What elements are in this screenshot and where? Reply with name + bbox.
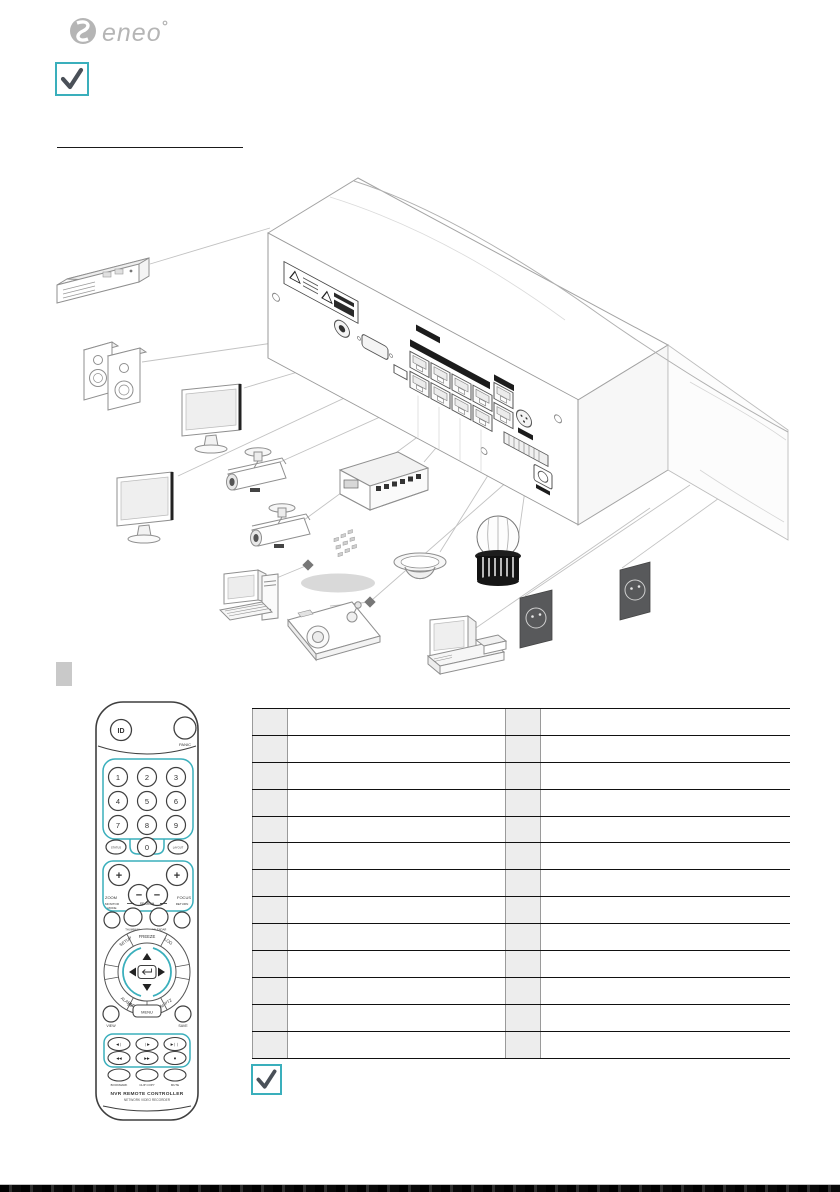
save-button	[175, 1006, 191, 1022]
button-number-cell	[252, 924, 288, 950]
stereo-speakers	[84, 342, 146, 410]
remote-control-illustration: ID PANIC 1 2 3 4 5 6 7 8	[85, 695, 210, 1130]
table-row	[252, 709, 790, 736]
button-number-cell	[252, 951, 288, 977]
button-description-cell	[541, 924, 790, 950]
table-row	[252, 897, 790, 924]
search-group-label: SEARCH	[140, 902, 155, 906]
view-button	[103, 1006, 119, 1022]
table-row	[252, 817, 790, 844]
clip-copy-label: CLIP COPY	[139, 1083, 154, 1087]
remote-brand-line1: NVR REMOTE CONTROLLER	[111, 1091, 184, 1097]
digit-3: 3	[174, 773, 178, 782]
button-number-cell	[252, 870, 288, 896]
button-number-cell	[505, 843, 541, 869]
save-label: SAVE	[178, 1024, 188, 1028]
calendar-search-button	[150, 908, 168, 926]
bullet-camera	[227, 448, 287, 492]
table-row	[252, 736, 790, 763]
table-row	[252, 978, 790, 1005]
button-number-cell	[505, 1032, 541, 1058]
zoom-minus: −	[136, 890, 142, 902]
note-check-icon	[55, 62, 89, 96]
focus-label: FOCUS	[177, 895, 191, 900]
alarm-siren	[475, 516, 521, 586]
button-number-cell	[505, 817, 541, 843]
id-button-label: ID	[118, 728, 125, 735]
return-label: RETURN	[176, 902, 189, 906]
return-button	[174, 912, 190, 928]
remote-buttons-table	[252, 708, 790, 1059]
button-description-cell	[288, 709, 505, 735]
button-number-cell	[505, 951, 541, 977]
number-pad: 1 2 3 4 5 6 7 8 9 0 STATUS LAYOUT	[103, 759, 193, 857]
poe-switch	[340, 452, 428, 510]
focus-plus: +	[174, 870, 180, 882]
panic-button-label: PANIC	[179, 742, 191, 747]
button-number-cell	[252, 1005, 288, 1031]
zoom-plus: +	[116, 870, 122, 882]
button-description-cell	[288, 870, 505, 896]
table-row	[252, 870, 790, 897]
dome-camera	[394, 553, 446, 579]
button-description-cell	[541, 736, 790, 762]
button-number-cell	[505, 924, 541, 950]
network-cloud	[301, 574, 375, 593]
focus-minus: −	[154, 890, 160, 902]
button-description-cell	[288, 897, 505, 923]
layout-button-label: LAYOUT	[173, 846, 184, 850]
digit-4: 4	[116, 797, 120, 806]
monitor-mode-button	[104, 912, 120, 928]
page-footer-strip	[0, 1184, 840, 1192]
button-number-cell	[505, 870, 541, 896]
manual-page: eneo	[0, 0, 840, 1192]
panic-button	[174, 717, 196, 739]
button-number-cell	[505, 736, 541, 762]
section-heading-underline	[57, 133, 243, 148]
thumbnail-search-button	[124, 908, 142, 926]
digit-5: 5	[145, 797, 149, 806]
button-description-cell	[288, 790, 505, 816]
note-check-icon-bottom	[251, 1064, 282, 1095]
bookmark-button	[108, 1069, 130, 1081]
button-description-cell	[541, 843, 790, 869]
eneo-logo: eneo	[66, 13, 176, 49]
button-number-cell	[505, 1005, 541, 1031]
digit-2: 2	[145, 773, 149, 782]
zoom-label: ZOOM	[105, 895, 117, 900]
stop-button: ■	[174, 1057, 176, 1061]
button-description-cell	[541, 1005, 790, 1031]
table-row	[252, 951, 790, 978]
power-outlet	[520, 590, 552, 648]
digit-0: 0	[145, 843, 149, 852]
ring-freeze-label: FREEZE	[139, 934, 156, 939]
view-label: VIEW	[106, 1024, 116, 1028]
button-number-cell	[505, 897, 541, 923]
button-description-cell	[541, 978, 790, 1004]
button-description-cell	[288, 951, 505, 977]
playback-group: ◀❘ ❘▶ ▶❘❘ ◀◀ ▶▶ ■	[104, 1034, 190, 1067]
table-row	[252, 790, 790, 817]
button-description-cell	[541, 817, 790, 843]
monitor	[117, 472, 172, 543]
button-description-cell	[541, 870, 790, 896]
digit-8: 8	[145, 821, 149, 830]
remote-brand-line2: NETWORK VIDEO RECORDER	[124, 1098, 171, 1102]
pc-workstation	[220, 570, 278, 620]
button-number-cell	[252, 978, 288, 1004]
table-row	[252, 1032, 790, 1059]
button-description-cell	[541, 709, 790, 735]
button-number-cell	[252, 897, 288, 923]
section-marker	[56, 662, 72, 686]
button-number-cell	[505, 790, 541, 816]
button-number-cell	[505, 978, 541, 1004]
table-row	[252, 763, 790, 790]
button-number-cell	[252, 843, 288, 869]
button-description-cell	[288, 843, 505, 869]
button-number-cell	[505, 763, 541, 789]
esata-storage-rack	[57, 258, 149, 303]
table-row	[252, 1005, 790, 1032]
logo-text: eneo	[102, 19, 162, 47]
digit-9: 9	[174, 821, 178, 830]
ptz-keyboard-controller	[288, 530, 380, 660]
installation-diagram	[0, 160, 840, 695]
button-number-cell	[252, 709, 288, 735]
clip-copy-button	[136, 1069, 158, 1081]
button-number-cell	[505, 709, 541, 735]
table-row	[252, 924, 790, 951]
button-number-cell	[252, 763, 288, 789]
network-node	[302, 559, 313, 570]
table-row	[252, 843, 790, 870]
button-number-cell	[252, 1032, 288, 1058]
button-description-cell	[541, 951, 790, 977]
button-description-cell	[541, 897, 790, 923]
pos-terminal	[428, 616, 506, 674]
button-description-cell	[541, 790, 790, 816]
button-description-cell	[541, 1032, 790, 1058]
mute-label: MUTE	[171, 1083, 179, 1087]
button-number-cell	[252, 790, 288, 816]
digit-6: 6	[174, 797, 178, 806]
navigation-ring: FREEZE SETUP LOG ALARM SEQUENCE ZOOM PTZ	[104, 929, 190, 1015]
digit-7: 7	[116, 821, 120, 830]
button-description-cell	[541, 763, 790, 789]
bookmark-label: BOOKMARK	[111, 1083, 128, 1087]
button-number-cell	[252, 736, 288, 762]
button-description-cell	[288, 924, 505, 950]
button-description-cell	[288, 1005, 505, 1031]
button-description-cell	[288, 817, 505, 843]
status-button-label: STATUS	[111, 846, 121, 850]
monitor	[182, 384, 240, 453]
mute-button	[164, 1069, 186, 1081]
button-description-cell	[288, 1032, 505, 1058]
play-pause-button: ▶❘❘	[171, 1042, 180, 1047]
power-outlet	[620, 562, 650, 620]
button-description-cell	[288, 763, 505, 789]
bullet-camera	[251, 504, 311, 548]
digit-1: 1	[116, 773, 120, 782]
button-description-cell	[288, 978, 505, 1004]
monitor-mode-label2: MODE	[108, 906, 117, 910]
step-back-button: ◀❘	[116, 1042, 122, 1047]
button-description-cell	[288, 736, 505, 762]
menu-label: MENU	[141, 1010, 153, 1015]
button-number-cell	[252, 817, 288, 843]
